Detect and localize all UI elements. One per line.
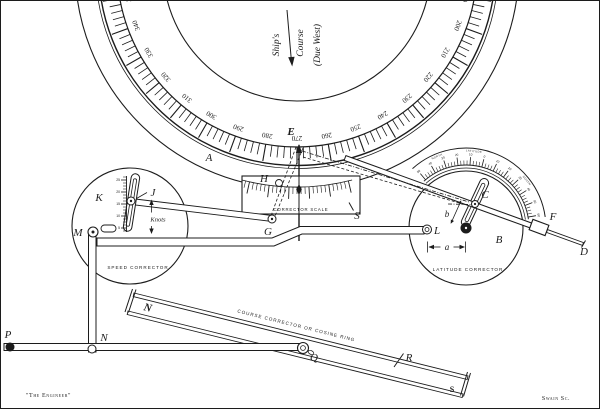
compass-tick [359,136,365,152]
compass-tick [453,57,468,66]
label-D: D [579,246,588,258]
compass-degree-label: 250 [349,122,362,133]
latitude-corrector-caption: LATITUDE CORRECTOR [433,267,504,272]
compass-tick [284,147,285,158]
ships-course-word3: (Due West) [312,24,323,66]
compass-tick [146,78,155,85]
compass-tick [466,29,482,35]
compass-tick [184,113,191,122]
compass-tick [146,83,159,94]
knots-caption: Knots [149,217,166,224]
dimension-b [451,200,462,224]
label-N-ring: N [141,301,154,315]
compass-tick [164,96,172,104]
compass-tick [472,11,483,14]
label-B: B [496,234,503,246]
compass-degree-label: 240 [376,109,390,121]
label-H: H [259,173,269,185]
compass-tick [128,52,138,57]
cosine-ring-rail-top [133,293,468,380]
compass-tick [403,113,410,122]
compass-tick [376,129,381,139]
compass-tick [138,68,148,74]
compass-band-circle-2 [96,0,499,169]
compass-tick [213,129,218,139]
credit-right: Swain Sc. [542,396,570,402]
compass-tick [155,87,164,95]
compass-tick [473,4,484,6]
compass-tick [263,144,266,161]
compass-tick [257,143,259,154]
compass-tick [179,109,186,118]
compass-tick [238,138,242,149]
compass-tick [207,126,212,136]
compass-tick [468,23,479,27]
label-A: A [205,152,213,164]
ships-course-word2: Course [296,29,306,56]
label-E: E [286,126,294,138]
label-N-link: N [99,332,108,344]
slider-block-F[interactable] [529,219,549,235]
compass-degree-label: 200 [452,19,463,32]
pivot-J-center [130,200,132,202]
compass-tick [328,144,331,161]
label-J-leader [137,193,148,199]
compass-tick [334,143,336,154]
knots-scale-label: 10 [116,214,120,218]
compass-degree-label: 310 [180,91,194,104]
label-S-scale: S [354,210,360,222]
link-bar-P-Q-horizontal[interactable] [4,344,304,351]
compass-tick [190,116,196,126]
compass-tick [417,101,425,110]
pivot-C-center [474,203,476,205]
pivot-L[interactable] [423,225,432,234]
dim-a-arrow-left [429,245,435,249]
label-P: P [4,329,12,341]
compass-tick [142,73,151,80]
compass-degree-label: 330 [143,46,155,60]
knots-scale-label: 20 [116,190,120,194]
credit-left: "The Engineer" [26,393,71,399]
compass-degree-labels: 1902002102202302402502602702802903003103… [124,0,471,142]
compass-tick [111,11,122,14]
compass-tick [270,145,272,156]
pivot-Q[interactable] [298,343,309,354]
label-G: G [264,226,272,238]
label-L: L [433,225,440,237]
label-J: J [151,187,157,199]
course-direction-arrow-head [288,57,294,67]
compass-tick [431,87,440,95]
compass-tick [461,40,472,45]
compass-tick [426,92,434,100]
compass-degree-label: 300 [204,109,218,121]
compass-tick [316,146,317,157]
compass-tick [225,134,229,145]
compass-tick [126,57,141,66]
compass-tick [387,123,396,138]
label-K: K [94,192,103,204]
compass-tick [347,140,350,151]
compass-tick [439,78,448,85]
compass-tick-base-circle [117,0,477,147]
pivot-M-center [92,231,95,234]
link-bar-M-N-vertical[interactable] [89,235,97,352]
compass-tick [456,52,466,57]
label-Q: Q [310,352,318,364]
bar-end-slot-M [101,225,116,232]
compass-tick [341,142,344,153]
dim-a-arrow-right [460,245,466,249]
pivot-N[interactable] [88,345,96,353]
label-M: M [72,227,83,239]
link-bar-M-L[interactable] [97,227,424,247]
knots-dim-arrow-down [149,229,153,235]
compass-tick [219,131,224,142]
compass-degree-label: 260 [320,131,332,141]
compass-tick [435,83,448,94]
compass-tick [196,120,202,130]
label-C: C [481,189,489,201]
rod-thin-end [547,230,584,246]
compass-tick [169,101,177,110]
compass-tick [370,131,375,142]
compass-degree-label: 230 [400,92,414,105]
compass-tick [135,62,145,68]
compass-tick [470,17,481,20]
compass-tick [170,105,181,118]
knots-scale-label: 5 [118,226,120,230]
speed-corrector-caption: SPEED CORRECTOR [107,265,168,270]
compass-tick [408,109,415,118]
label-F: F [549,211,557,223]
compass-tick [113,17,124,20]
compass-tick [464,34,475,38]
compass-tick [159,92,167,100]
compass-tick [364,134,368,145]
compass-tick [422,96,430,104]
compass-tick [122,40,133,45]
ships-course-annotation: Ship's Course (Due West) [272,10,323,67]
label-R: R [405,352,413,364]
compass-tick [310,147,311,158]
cosine-ring-left-cap-1 [129,290,137,313]
compass-tick [112,29,128,35]
compass-tick [459,46,469,51]
pivot-P-black[interactable] [6,343,15,352]
compass-tick [353,138,357,149]
cosine-ring-left-cap-2 [125,289,133,312]
ships-course-word1: Ship's [272,33,282,56]
engraving-figure: 1902002102202302402502602702802903003103… [0,0,600,409]
compass-tick [115,23,126,27]
compass-tick [446,68,456,74]
compass-tick [230,136,236,152]
compass-tick [322,145,324,156]
compass-tick [199,123,208,138]
compass-degree-label: 220 [421,70,434,84]
label-dim-a: a [445,242,450,252]
compass-tick [110,4,121,6]
knots-scale-label: 15 [116,202,120,206]
compass-degree-label: 280 [261,131,273,141]
knots-scale-label: 25 [116,178,120,182]
compass-tick [277,146,278,157]
compass-tick [244,140,247,151]
compass-degree-label: 340 [131,19,142,32]
compass-tick [382,126,387,136]
pivot-latitude-center-dot [465,227,467,229]
label-S-ring: S [450,385,455,394]
compass-tick [119,34,130,38]
compass-tick [450,62,460,68]
dim-b-line [452,202,461,222]
compass-tick [251,142,254,153]
compass-tick [398,116,404,126]
course-direction-arrow-shaft [287,10,292,62]
compass-tick [443,73,452,80]
latitude-tick [470,157,471,165]
compass-tick [413,105,424,118]
compass-degree-label: 210 [439,46,451,60]
compass-tick [125,46,135,51]
corrector-scale-caption: CORRECTOR SCALE [274,207,329,212]
compass-degree-label: 320 [159,70,172,84]
pivot-G-center [271,218,273,220]
compass-degree-label: 290 [232,122,245,133]
compass-tick [392,120,398,130]
label-dim-b: b [445,209,450,219]
